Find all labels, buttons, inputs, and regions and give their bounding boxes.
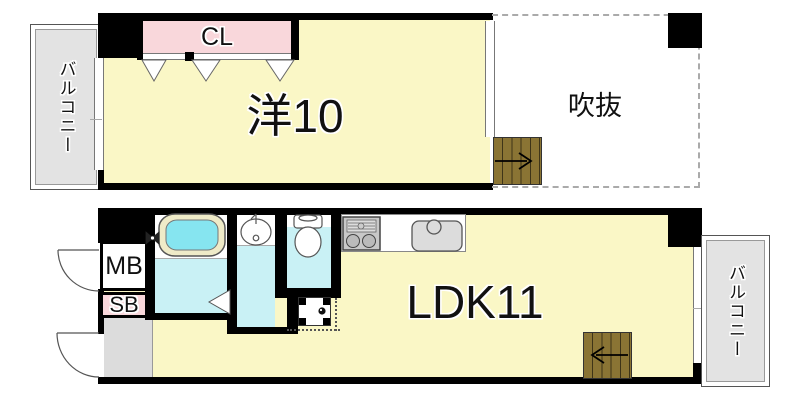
- toilet-icon: [294, 215, 322, 257]
- closet-door-icon: [142, 60, 294, 81]
- bath-faucet-icon: [146, 232, 159, 244]
- stairs-down-arrow-icon: [592, 347, 628, 363]
- entrance-door-arc: [57, 333, 99, 377]
- bathtub-icon: [159, 214, 225, 256]
- kitchen-sink-icon: [412, 220, 462, 251]
- mb-door-arc: [58, 250, 99, 291]
- washer-pan-detail-icon: [299, 298, 330, 325]
- floorplan: バルコニー CL 洋10 吹抜 MB SB: [0, 0, 800, 400]
- bath-door-icon: [209, 290, 230, 314]
- washbasin-icon: [241, 214, 271, 245]
- fixtures-overlay: [0, 0, 800, 400]
- stairs-up-arrow-icon: [495, 153, 531, 169]
- stove-icon: [343, 217, 380, 250]
